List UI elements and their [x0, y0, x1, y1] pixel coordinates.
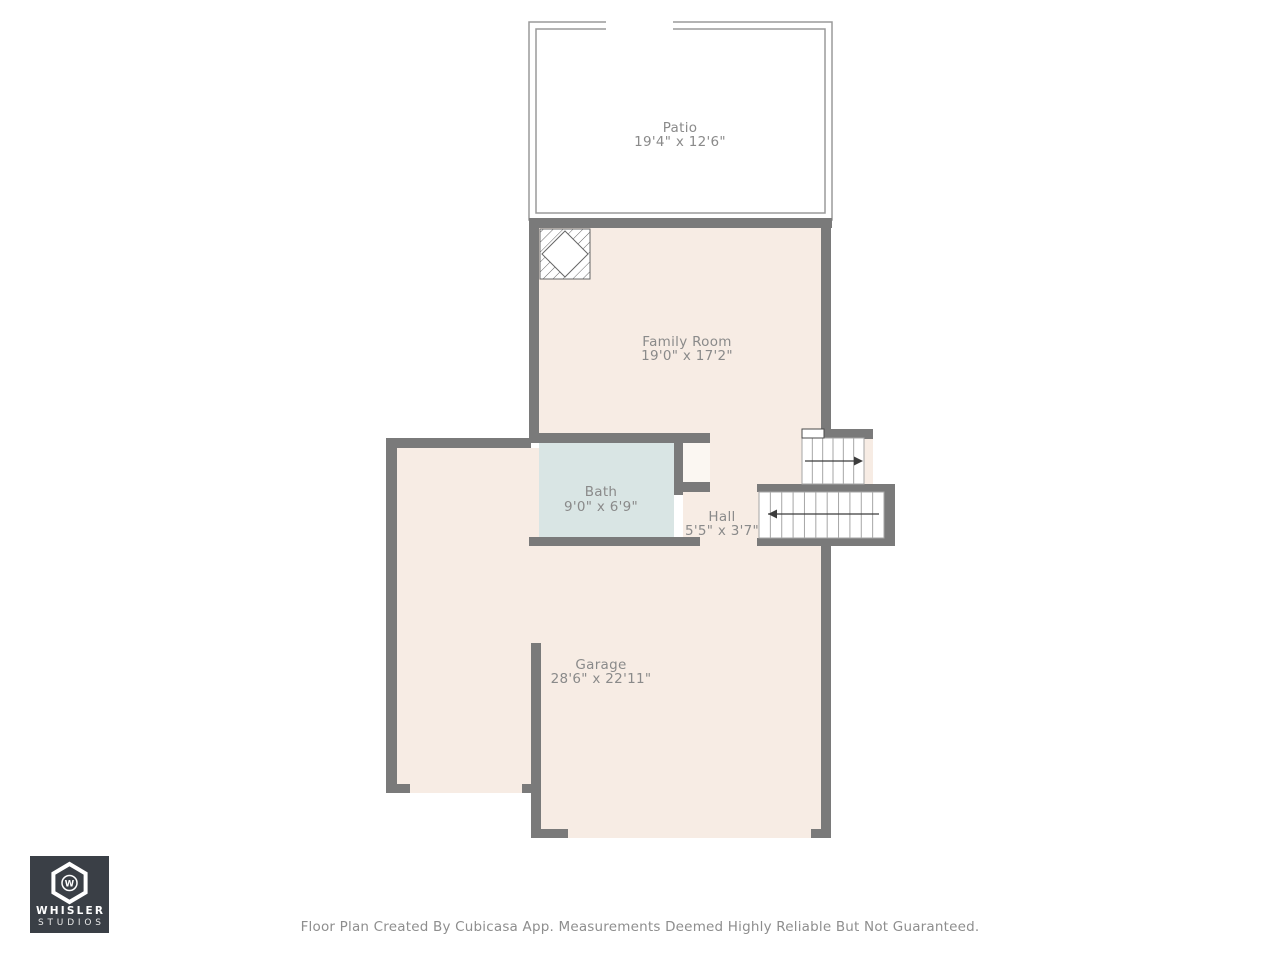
logo-monogram: W: [65, 880, 75, 890]
wall-garage-interior: [531, 643, 541, 838]
fireplace-icon: [540, 229, 590, 279]
garage-dimensions: 28'6" x 22'11": [551, 671, 652, 687]
patio-room: [529, 17, 832, 220]
wall-garage-right: [821, 538, 831, 838]
bath-dimensions: 9'0" x 6'9": [564, 499, 638, 515]
family-room-dimensions: 19'0" x 17'2": [641, 348, 733, 364]
brand-name: WHISLER: [30, 905, 109, 917]
wall-stairs-down-bottom: [757, 538, 895, 546]
wall-bath-top: [529, 433, 710, 443]
patio-dimensions: 19'4" x 12'6": [634, 134, 726, 150]
garage-left-floor: [397, 448, 541, 793]
wall-garage-bottomleft-stub1: [386, 784, 410, 793]
wall-opening-patio-door: [634, 218, 726, 228]
stairs-down-box: [759, 492, 884, 538]
wall-family-right: [821, 218, 831, 430]
floor-plan-page: Patio 19'4" x 12'6" Family Room 19'0" x …: [0, 0, 1280, 960]
floor-plan-canvas: Patio 19'4" x 12'6" Family Room 19'0" x …: [0, 0, 1280, 960]
logo-hexagon-icon: W: [30, 860, 109, 910]
wall-family-left: [529, 218, 539, 443]
footer-disclaimer: Floor Plan Created By Cubicasa App. Meas…: [0, 919, 1280, 935]
wall-garage-bottomright-stub1: [531, 829, 568, 838]
patio-top-opening: [606, 17, 673, 30]
doorway-nook: [683, 443, 710, 482]
wall-bath-bottom: [529, 537, 700, 546]
wall-nook-bottom: [674, 482, 710, 492]
wall-stairs-down-top: [757, 484, 895, 492]
bath-label: Bath: [585, 484, 618, 500]
stairs-down: [759, 492, 884, 538]
wall-garage-top: [386, 438, 531, 448]
wall-garage-left: [386, 438, 397, 793]
hall-dimensions: 5'5" x 3'7": [685, 523, 759, 539]
stairs-up-start-marker: [802, 429, 824, 438]
wall-stairs-down-right: [884, 484, 895, 546]
stair-landing-strip: [864, 438, 873, 484]
garage-right-floor: [541, 546, 821, 838]
